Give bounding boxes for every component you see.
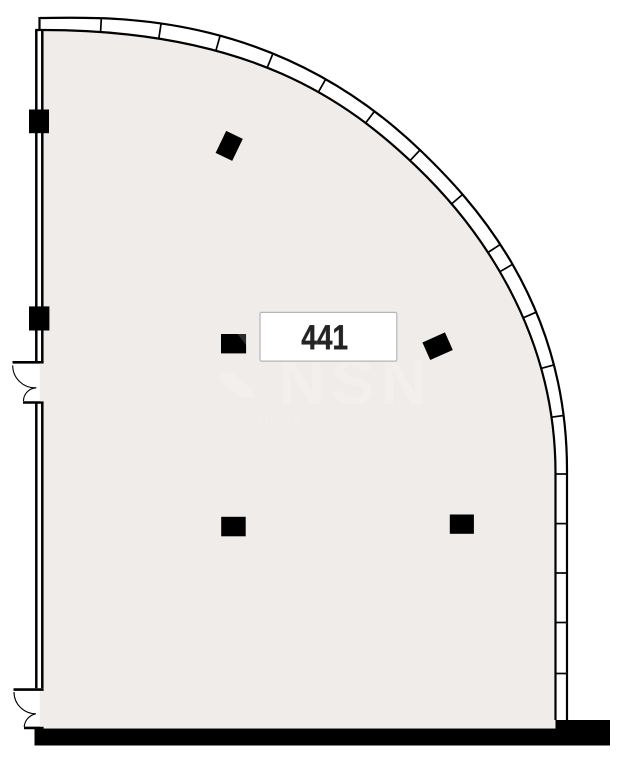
svg-text:Group: Group [259, 413, 302, 427]
